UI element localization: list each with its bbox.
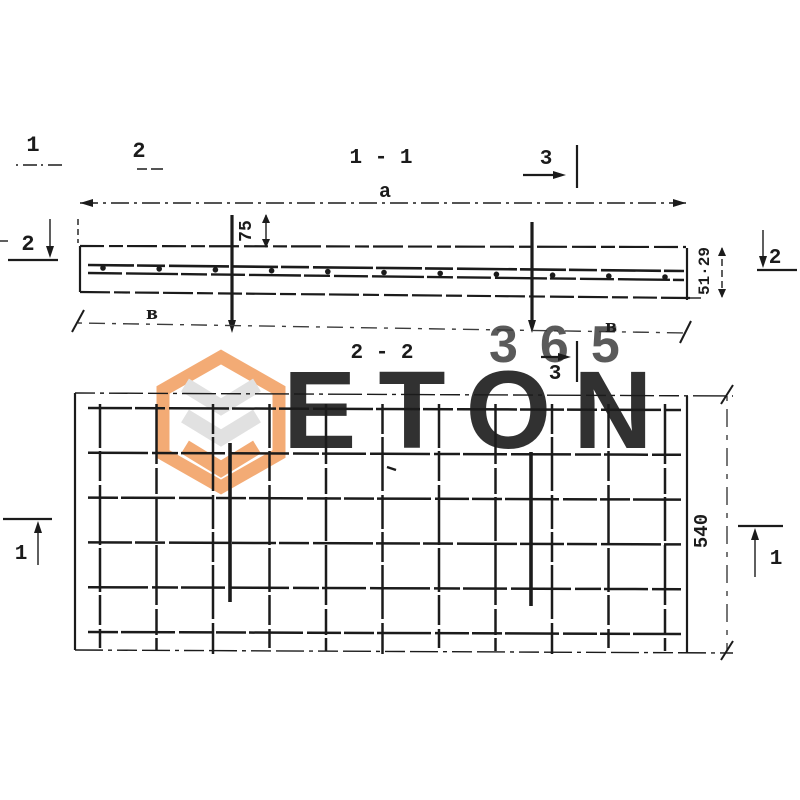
slab-top-edge [80,246,686,247]
dim-a-arrow-right [673,199,686,207]
dim-540-tick-top [721,385,733,404]
rebar-line-upper [88,265,684,271]
mesh-horizontal-bar [88,632,681,634]
cut-3-label-top: 3 [540,148,553,171]
transverse-bar-dot [381,270,387,276]
panel-bottom-edge [75,650,733,653]
cut-3-label-bottom: 3 [549,363,562,386]
transverse-bar-dot [325,269,331,275]
cut-2-label-right: 2 [769,247,782,270]
transverse-bar-dot [662,274,668,280]
beton-logo-icon [163,357,279,487]
dim-thickness-arrow-top [718,247,726,256]
transverse-bar-dot [550,272,556,278]
cut-marker-3-top: 3 [523,145,577,188]
transverse-bar-dot [269,268,275,274]
cut-1-label-right: 1 [770,548,783,571]
mesh-horizontal-bar [88,498,681,500]
dim-75-label: 75 [237,220,257,242]
cut-1-label-left: 1 [15,543,28,566]
logo-chevron-top [185,385,257,407]
position-label-2: 2 [132,139,145,164]
dim-75-arrow-top [262,214,270,223]
marker-arrow-down [46,246,54,258]
cut-marker-1-right: 1 [738,526,783,577]
dim-b-label-left: в [146,304,158,324]
transverse-bar-dot [437,271,443,277]
dim-a-arrow-left [80,199,93,207]
transverse-bar-dot [156,266,162,272]
dim-540-label: 540 [691,514,713,548]
pin-left-arrow [228,320,236,333]
cut-2-label-left: 2 [21,232,34,257]
cut-marker-2-left: 2 [0,219,58,260]
logo-chevron-middle [185,416,257,438]
dim-thickness-arrow-bottom [718,289,726,298]
reinforcement-drawing: ETON 365 1 2 1 - 1 a 75 [0,0,800,800]
transverse-bar-dot [606,273,612,279]
mesh-horizontal-bar [88,542,681,544]
marker-arrow-up [34,521,42,533]
drawing-sheet: ETON 365 1 2 1 - 1 a 75 [0,0,800,800]
mesh-horizontal-bar [88,587,681,589]
position-label-1: 1 [26,133,39,158]
transverse-bar-dot [213,267,219,273]
dim-thickness-label: 51·29 [696,247,714,295]
cut-marker-2-right: 2 [757,230,797,270]
dim-b-tick-left [72,310,84,332]
dim-a-label: a [379,181,391,204]
dim-b-tick-right [680,321,691,343]
marker-arrow-down [759,256,767,268]
dim-b-label-right: в [605,317,617,337]
marker-arrow-right [553,171,566,179]
section-1-1-title: 1 - 1 [349,147,412,170]
watermark: ETON 365 [163,316,675,487]
slab-bottom-edge [80,292,690,298]
marker-arrow-up [751,528,759,540]
cut-marker-1-left: 1 [3,519,52,566]
transverse-bar-dot [100,265,106,271]
watermark-number-text: 365 [489,316,642,374]
transverse-bar-dot [494,272,500,278]
section-2-2-title: 2 - 2 [350,342,413,365]
